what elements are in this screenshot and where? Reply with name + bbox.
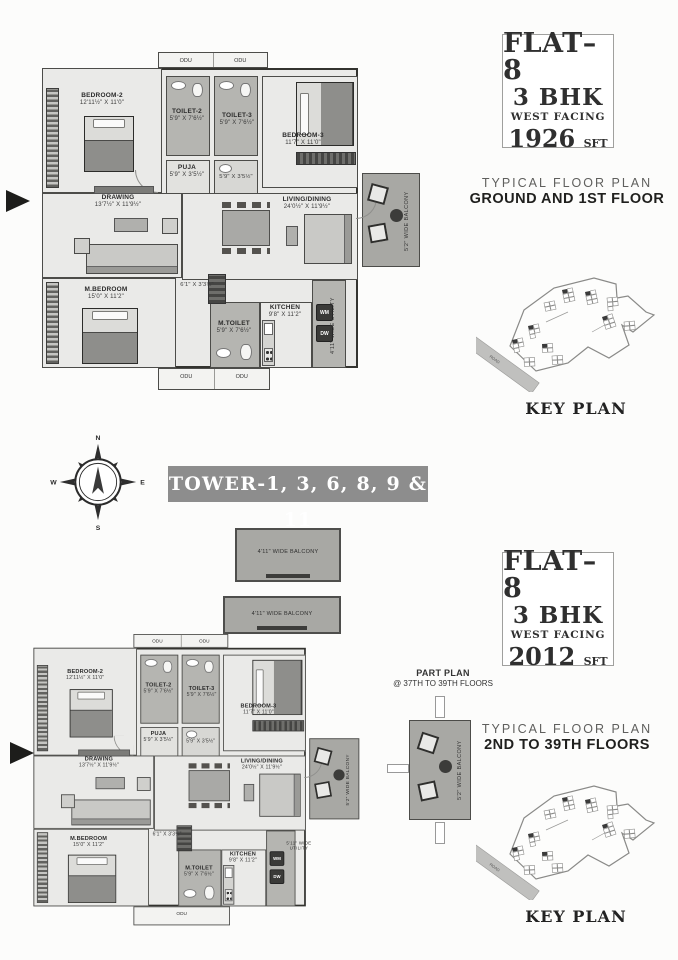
label-toilet3: TOILET-35'9" X 7'6½"	[209, 112, 265, 128]
odu-units-bottom: ODU	[133, 906, 230, 925]
room-utility	[312, 280, 346, 368]
wardrobe	[252, 720, 304, 731]
keyplan-map-host: ROAD	[476, 778, 676, 905]
wardrobe	[37, 832, 48, 903]
label-utility: 4'11" WIDE UTILITY	[330, 292, 336, 360]
compass-w: W	[50, 480, 57, 487]
bed	[84, 116, 134, 172]
hob	[264, 348, 273, 362]
flat-info-box-1: FLAT–8 3 BHK WEST FACING 1926 SFT	[502, 34, 614, 148]
armchair	[61, 794, 75, 808]
washbasin	[219, 81, 234, 90]
entry-arrow-icon	[6, 190, 30, 212]
keyplan-title: KEY PLAN	[476, 907, 676, 926]
toilet-wc	[240, 83, 251, 97]
part-plan-title: PART PLAN	[383, 668, 503, 678]
label-balcony: 5'2" WIDE BALCONY	[404, 182, 410, 260]
caption-line2: GROUND AND 1ST FLOOR	[452, 191, 678, 207]
brochure-page: ODU ODU ODU ODU	[0, 0, 678, 960]
washbasin	[219, 164, 232, 173]
odu-label: ODU	[180, 635, 227, 647]
odu-units-top: ODU ODU	[133, 634, 228, 648]
bed	[70, 689, 113, 737]
odu-units-bottom: ODU ODU	[158, 368, 270, 390]
coffee-table	[96, 777, 125, 789]
sofa	[86, 244, 178, 274]
dining-table	[222, 210, 270, 246]
balcony-chair	[314, 781, 332, 799]
washbasin	[183, 889, 196, 898]
balcony-rail	[257, 626, 307, 630]
sofa	[71, 800, 150, 826]
flat-area: 2012	[508, 642, 575, 671]
balcony-table	[333, 769, 344, 780]
washbasin	[186, 731, 197, 739]
part-plan-subtitle: @ 37TH TO 39TH FLOORS	[383, 679, 503, 688]
label-toilet2: TOILET-25'9" X 7'6½"	[134, 682, 182, 695]
odu-units-top: ODU ODU	[158, 52, 268, 68]
odu-label: ODU	[134, 907, 229, 924]
label-utility: 5'11" WIDE UTILITY	[282, 841, 316, 900]
flat-info-box-2: FLAT–8 3 BHK WEST FACING 2012 SFT	[502, 552, 614, 666]
bed	[68, 855, 116, 903]
toilet-wc	[204, 661, 213, 673]
label-puja: PUJA5'9" X 3'5½"	[137, 731, 180, 744]
dining-chairs	[189, 763, 230, 768]
area-unit: SFT	[584, 655, 608, 668]
balcony-chair	[368, 223, 389, 244]
keyplan-map: ROAD	[476, 270, 676, 392]
dining-chairs	[222, 202, 270, 208]
caption-line1: TYPICAL FLOOR PLAN	[452, 722, 678, 736]
wall-stub	[435, 822, 445, 844]
compass-e: E	[140, 480, 145, 487]
balcony-table	[439, 760, 452, 773]
sofa	[304, 214, 352, 264]
wardrobe	[296, 152, 356, 165]
label-bedroom3: BEDROOM-311'7" X 11'0"	[268, 132, 338, 148]
washbasin	[186, 659, 199, 667]
plan-caption-2: TYPICAL FLOOR PLAN 2ND TO 39TH FLOORS	[452, 722, 678, 753]
label-living: LIVING/DINING24'0½" X 11'9½"	[264, 196, 350, 212]
armchair	[162, 218, 178, 234]
flat-type: 3 BHK	[513, 85, 603, 110]
kitchen-sink	[264, 323, 273, 335]
keyplan-block-1: ROAD KEY PLAN	[476, 270, 676, 418]
label-bedroom2: BEDROOM-212'11½" X 11'0"	[42, 668, 128, 681]
odu-label: ODU	[134, 635, 180, 647]
side-table	[286, 226, 298, 246]
side-table	[244, 784, 254, 801]
label-bedroom3: BEDROOM-311'7" X 11'0"	[228, 703, 288, 716]
flat-facing: WEST FACING	[511, 629, 605, 643]
label-passage-dims: 6'1" X 3'3½"	[166, 282, 228, 289]
flat-number: FLAT–8	[503, 548, 613, 602]
flat-facing: WEST FACING	[511, 111, 605, 125]
caption-line2: 2ND TO 39TH FLOORS	[452, 737, 678, 753]
odu-label: ODU	[213, 53, 268, 67]
wardrobe	[46, 282, 59, 364]
label-balcony: 5'2" WIDE BALCONY	[345, 746, 350, 813]
label-kitchen: KITCHEN9'8" X 11'2"	[221, 851, 264, 864]
armchair	[137, 777, 151, 791]
flat-area: 1926	[508, 124, 575, 153]
label-master-toilet: M.TOILET5'9" X 7'6½"	[206, 320, 262, 336]
balcony-label: 4'11" WIDE BALCONY	[225, 611, 339, 617]
label-master-toilet: M.TOILET5'9" X 7'6½"	[175, 865, 223, 878]
armchair	[74, 238, 90, 254]
label-toilet2: TOILET-25'9" X 7'6½"	[159, 108, 215, 124]
toilet-wc	[204, 886, 214, 900]
area-unit: SFT	[584, 137, 608, 150]
wide-balcony-detached: 4'11" WIDE BALCONY	[235, 528, 341, 582]
flat-number: FLAT–8	[503, 30, 613, 84]
coffee-table	[114, 218, 148, 232]
label-kitchen: KITCHEN9'8" X 11'2"	[260, 304, 310, 320]
bed	[82, 308, 138, 364]
kitchen-sink	[225, 868, 233, 878]
washbasin	[145, 659, 158, 667]
label-drawing: DRAWING13'7½" X 11'9½"	[76, 194, 160, 210]
tv-unit	[78, 750, 130, 757]
keyplan-map: ROAD	[476, 778, 676, 900]
floor-plan-ground-1st: ODU ODU ODU ODU	[38, 52, 438, 397]
balcony-label: 4'11" WIDE BALCONY	[237, 549, 339, 555]
label-wash-dims: 5'9" X 3'5½"	[180, 739, 221, 745]
plan-caption-1: TYPICAL FLOOR PLAN GROUND AND 1ST FLOOR	[452, 176, 678, 207]
floor-plan-body: ODU ODU ODU ODU	[38, 52, 428, 392]
balcony-rail	[266, 574, 311, 578]
compass-n: N	[96, 435, 101, 442]
wall-stub	[387, 764, 409, 773]
balcony-table	[390, 209, 403, 222]
hob	[225, 889, 233, 901]
wide-balcony-attached: 4'11" WIDE BALCONY	[223, 596, 341, 634]
wall-stub	[435, 696, 445, 718]
caption-line1: TYPICAL FLOOR PLAN	[452, 176, 678, 190]
dining-table	[189, 770, 230, 801]
dining-chairs	[189, 803, 230, 808]
tv-unit	[94, 186, 154, 194]
label-puja: PUJA5'9" X 3'5½"	[162, 164, 212, 180]
toilet-wc	[163, 661, 172, 673]
label-living: LIVING/DINING24'0½" X 11'9½"	[225, 758, 299, 771]
label-wash-dims: 5'9" X 3'5½"	[212, 174, 260, 181]
toilet-wc	[192, 83, 203, 97]
sofa	[259, 774, 300, 817]
label-bedroom2: BEDROOM-212'11½" X 11'0"	[52, 92, 152, 108]
odu-label: ODU	[159, 53, 213, 67]
toilet-wc	[240, 344, 252, 360]
keyplan-map-host: ROAD	[476, 270, 676, 397]
flat-type: 3 BHK	[513, 603, 603, 628]
label-master-bedroom: M.BEDROOM15'0" X 11'2"	[49, 836, 128, 849]
odu-label: ODU	[214, 369, 270, 389]
label-master-bedroom: M.BEDROOM15'0" X 11'2"	[60, 286, 152, 302]
keyplan-block-2: ROAD KEY PLAN	[476, 778, 676, 926]
balcony-chair	[417, 780, 438, 801]
odu-label: ODU	[159, 369, 214, 389]
keyplan-title: KEY PLAN	[476, 399, 676, 418]
entry-arrow-icon	[10, 742, 34, 764]
floor-plan-body: ODU ODU ODU	[30, 634, 366, 927]
label-toilet3: TOILET-35'9" X 7'6½"	[177, 686, 225, 699]
tower-banner: TOWER-1, 3, 6, 8, 9 & 11	[168, 466, 428, 502]
washbasin	[171, 81, 186, 90]
label-passage-dims: 6'1" X 3'3½"	[140, 832, 193, 838]
compass-rose: N E S W	[48, 432, 148, 532]
washbasin	[216, 348, 231, 358]
dining-chairs	[222, 248, 270, 254]
label-drawing: DRAWING13'7½" X 11'9½"	[63, 756, 135, 769]
